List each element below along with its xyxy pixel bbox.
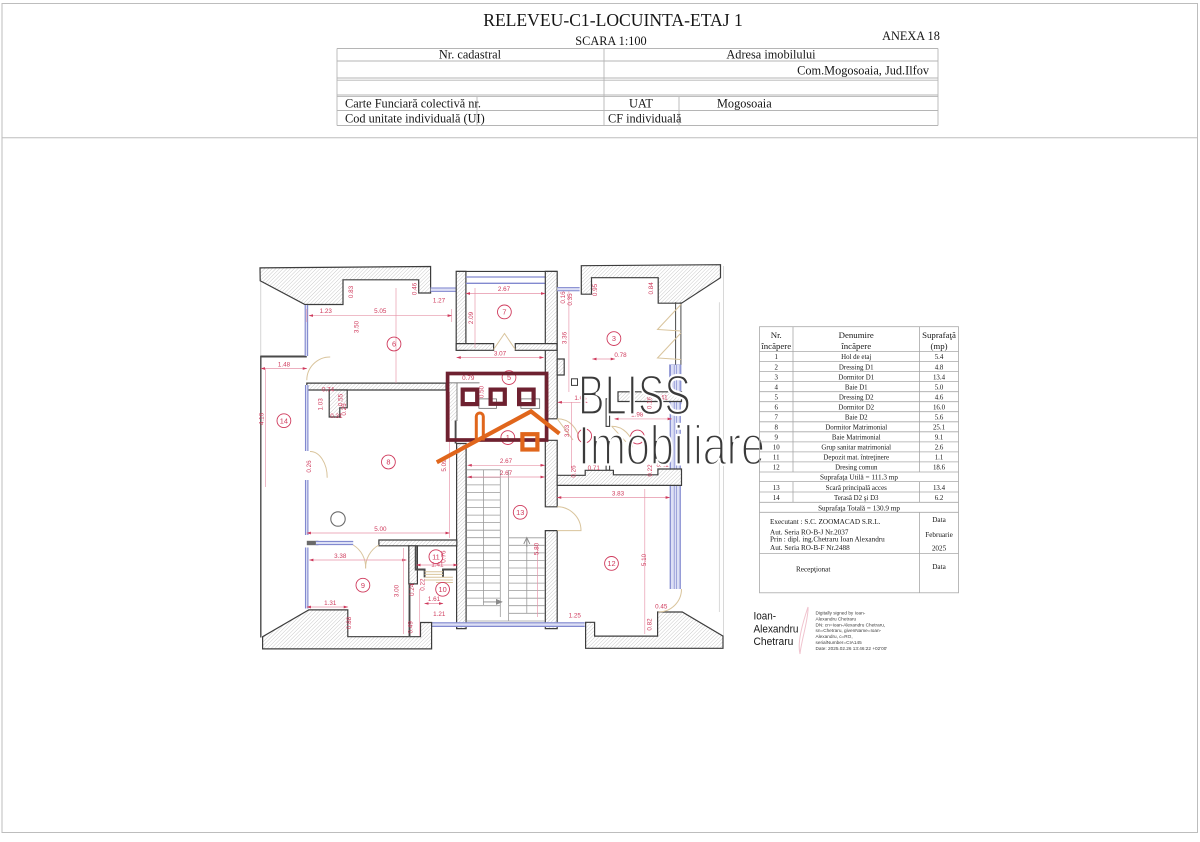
svg-text:5.0: 5.0 <box>935 384 944 391</box>
svg-text:1.1: 1.1 <box>935 455 944 462</box>
svg-text:5.4: 5.4 <box>935 354 944 361</box>
svg-text:1.21: 1.21 <box>433 611 446 618</box>
svg-text:16.0: 16.0 <box>933 404 946 411</box>
svg-text:5.00: 5.00 <box>374 526 387 533</box>
svg-text:(mp): (mp) <box>930 341 947 351</box>
svg-text:0.88: 0.88 <box>346 616 353 629</box>
svg-text:5.6: 5.6 <box>935 415 944 422</box>
svg-text:5.05: 5.05 <box>374 308 387 315</box>
svg-text:10: 10 <box>773 445 780 452</box>
svg-text:Cod unitate individuală (UI): Cod unitate individuală (UI) <box>345 112 485 126</box>
svg-text:13: 13 <box>773 485 780 492</box>
svg-text:0.45: 0.45 <box>655 603 668 610</box>
svg-text:Data: Data <box>932 516 946 524</box>
svg-text:1.27: 1.27 <box>433 298 446 305</box>
svg-text:0.84: 0.84 <box>648 282 655 295</box>
svg-text:1.61: 1.61 <box>428 596 441 603</box>
svg-text:Prin : dipl. ing.Chetraru Ioan: Prin : dipl. ing.Chetraru Ioan Alexandru <box>770 536 885 544</box>
svg-text:0.24: 0.24 <box>409 583 416 596</box>
svg-text:0.78: 0.78 <box>614 352 627 359</box>
svg-text:0.50: 0.50 <box>478 385 485 398</box>
svg-text:9.1: 9.1 <box>935 435 944 442</box>
svg-text:DN: cn=Ioan-Alexandru Chetraru: DN: cn=Ioan-Alexandru Chetraru, <box>816 622 886 627</box>
svg-text:Dormitor D1: Dormitor D1 <box>838 374 874 381</box>
svg-text:Alexandru Chetraru: Alexandru Chetraru <box>816 616 857 621</box>
svg-text:11: 11 <box>773 455 780 462</box>
svg-text:5: 5 <box>775 394 779 401</box>
svg-text:Aut. Seria RO-B-F Nr.2488: Aut. Seria RO-B-F Nr.2488 <box>770 544 850 552</box>
svg-text:12: 12 <box>773 465 780 472</box>
svg-text:Executant : S.C. ZOOMACAD S.R.: Executant : S.C. ZOOMACAD S.R.L. <box>770 518 881 526</box>
svg-text:0.26: 0.26 <box>306 460 313 473</box>
svg-text:Suprafaţa Totală = 130.9 mp: Suprafaţa Totală = 130.9 mp <box>818 504 900 512</box>
svg-text:Date: 2025.02.26 13:46:22 +02': Date: 2025.02.26 13:46:22 +02'00' <box>816 646 888 651</box>
svg-text:0.79: 0.79 <box>462 375 475 382</box>
svg-text:3.36: 3.36 <box>562 331 569 344</box>
svg-text:2025: 2025 <box>932 545 947 553</box>
svg-text:9: 9 <box>775 435 779 442</box>
svg-text:4.6: 4.6 <box>935 394 944 401</box>
svg-text:Dresing comun: Dresing comun <box>835 465 878 472</box>
svg-text:4.16: 4.16 <box>259 412 266 425</box>
svg-text:Hol de etaj: Hol de etaj <box>841 354 871 361</box>
svg-text:1.25: 1.25 <box>569 613 582 620</box>
svg-text:3: 3 <box>612 334 616 343</box>
svg-text:8: 8 <box>386 458 390 467</box>
svg-text:Baie D2: Baie D2 <box>845 415 868 422</box>
svg-text:Digitally signed by Ioan-: Digitally signed by Ioan- <box>816 611 866 616</box>
svg-text:Terasă D2 şi D3: Terasă D2 şi D3 <box>834 495 879 502</box>
svg-text:Grup sanitar matrimonial: Grup sanitar matrimonial <box>821 445 891 452</box>
svg-text:10: 10 <box>438 585 446 594</box>
svg-text:Dressing D1: Dressing D1 <box>839 364 874 371</box>
svg-text:2.09: 2.09 <box>468 311 475 324</box>
svg-text:Dormitor D2: Dormitor D2 <box>838 404 874 411</box>
svg-text:0.82: 0.82 <box>646 618 653 631</box>
svg-text:RELEVEU-C1-LOCUINTA-ETAJ 1: RELEVEU-C1-LOCUINTA-ETAJ 1 <box>483 10 743 30</box>
svg-text:4: 4 <box>775 384 779 391</box>
svg-text:sn=Chetraru, givenName=Ioan-: sn=Chetraru, givenName=Ioan- <box>816 628 882 633</box>
svg-text:1.03: 1.03 <box>318 398 325 411</box>
svg-text:Chetraru: Chetraru <box>754 636 794 648</box>
svg-text:Suprafaţă: Suprafaţă <box>922 330 956 340</box>
svg-text:14: 14 <box>280 416 288 425</box>
svg-text:Recepţionat: Recepţionat <box>796 566 830 574</box>
svg-text:Dressing D2: Dressing D2 <box>839 394 874 401</box>
svg-text:25.1: 25.1 <box>933 425 946 432</box>
svg-text:5.10: 5.10 <box>641 553 648 566</box>
svg-text:Februarie: Februarie <box>925 531 953 539</box>
svg-text:Alexandru: Alexandru <box>754 623 799 635</box>
svg-text:13.4: 13.4 <box>933 374 946 381</box>
svg-text:ANEXA 18: ANEXA 18 <box>882 29 940 43</box>
svg-text:Nr. cadastral: Nr. cadastral <box>439 48 502 62</box>
svg-text:14: 14 <box>773 495 780 502</box>
svg-text:1.48: 1.48 <box>278 362 291 369</box>
svg-text:Suprafaţa Utilă = 111.3 mp: Suprafaţa Utilă = 111.3 mp <box>820 474 898 482</box>
svg-text:Baie Matrimonial: Baie Matrimonial <box>832 435 881 442</box>
svg-text:6: 6 <box>392 340 396 349</box>
svg-text:3: 3 <box>775 374 779 381</box>
svg-text:0.26: 0.26 <box>571 465 578 478</box>
svg-text:serialNumber=CIA145: serialNumber=CIA145 <box>816 640 863 645</box>
svg-text:3.03: 3.03 <box>564 424 571 437</box>
svg-text:0.83: 0.83 <box>348 285 355 298</box>
svg-text:11: 11 <box>432 552 440 561</box>
svg-text:0.49: 0.49 <box>408 621 415 634</box>
svg-text:Denumire: Denumire <box>839 330 874 340</box>
svg-text:6.2: 6.2 <box>935 495 944 502</box>
svg-text:Data: Data <box>932 563 946 571</box>
svg-text:3.07: 3.07 <box>494 351 507 358</box>
svg-text:1.31: 1.31 <box>324 600 337 607</box>
svg-text:13.4: 13.4 <box>933 485 946 492</box>
svg-text:Adresa imobilului: Adresa imobilului <box>726 48 816 62</box>
svg-text:13: 13 <box>516 508 524 517</box>
svg-text:18.6: 18.6 <box>933 465 946 472</box>
svg-text:Mogosoaia: Mogosoaia <box>717 97 772 111</box>
svg-text:Ioan-: Ioan- <box>754 611 777 623</box>
svg-text:SCARA 1:100: SCARA 1:100 <box>575 34 646 48</box>
svg-text:încăpere: încăpere <box>760 341 791 351</box>
svg-text:Depozit mat. întreţinere: Depozit mat. întreţinere <box>823 455 889 462</box>
svg-text:0.31: 0.31 <box>330 413 343 420</box>
svg-text:UAT: UAT <box>629 97 653 111</box>
svg-text:7: 7 <box>775 415 779 422</box>
svg-text:2: 2 <box>775 364 779 371</box>
svg-text:6: 6 <box>775 404 779 411</box>
svg-text:Com.Mogosoaia, Jud.Ilfov: Com.Mogosoaia, Jud.Ilfov <box>797 64 930 78</box>
svg-text:Baie D1: Baie D1 <box>845 384 868 391</box>
svg-text:0.46: 0.46 <box>412 282 419 295</box>
svg-text:1.23: 1.23 <box>320 308 333 315</box>
svg-text:3.83: 3.83 <box>612 490 625 497</box>
svg-text:3.00: 3.00 <box>394 584 401 597</box>
svg-text:Alexandru, c=RO,: Alexandru, c=RO, <box>816 634 853 639</box>
svg-text:0.95: 0.95 <box>592 283 599 296</box>
svg-text:12: 12 <box>607 559 615 568</box>
svg-text:CF individuală: CF individuală <box>608 112 682 126</box>
svg-text:Imobiliare: Imobiliare <box>578 414 765 477</box>
svg-text:Nr.: Nr. <box>771 330 782 340</box>
svg-text:1: 1 <box>775 354 779 361</box>
svg-text:Scară principală acces: Scară principală acces <box>826 485 888 492</box>
svg-text:9: 9 <box>361 581 365 590</box>
svg-text:0.16: 0.16 <box>560 291 567 304</box>
svg-text:Carte Funciară colectivă nr.: Carte Funciară colectivă nr. <box>345 97 481 111</box>
svg-text:0.35: 0.35 <box>567 293 574 306</box>
svg-text:3.38: 3.38 <box>334 553 347 560</box>
svg-text:2.67: 2.67 <box>500 458 513 465</box>
svg-text:Dormitor Matrimonial: Dormitor Matrimonial <box>825 425 887 432</box>
svg-text:7: 7 <box>502 308 506 317</box>
svg-text:5.80: 5.80 <box>534 542 541 555</box>
svg-text:0.74: 0.74 <box>322 387 335 394</box>
svg-text:8: 8 <box>775 425 779 432</box>
svg-text:0.22: 0.22 <box>419 578 426 591</box>
svg-text:3.50: 3.50 <box>354 320 361 333</box>
svg-text:2.67: 2.67 <box>498 286 511 293</box>
svg-text:încăpere: încăpere <box>840 341 871 351</box>
svg-text:4.8: 4.8 <box>935 364 944 371</box>
svg-text:2.67: 2.67 <box>500 470 513 477</box>
svg-text:2.6: 2.6 <box>935 445 944 452</box>
